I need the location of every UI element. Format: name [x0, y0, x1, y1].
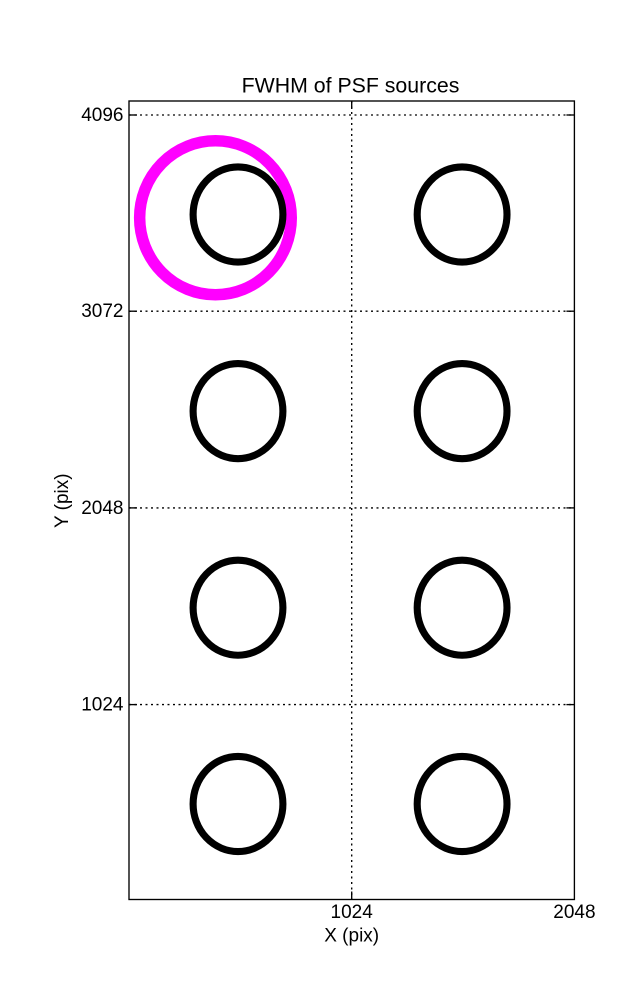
svg-text:4096: 4096 — [81, 105, 123, 126]
svg-text:3072: 3072 — [81, 301, 123, 322]
svg-text:X (pix): X (pix) — [324, 926, 379, 947]
svg-text:Y (pix): Y (pix) — [52, 473, 73, 528]
svg-text:1024: 1024 — [331, 902, 374, 923]
svg-text:1024: 1024 — [81, 695, 124, 716]
svg-text:FWHM of PSF sources: FWHM of PSF sources — [242, 74, 460, 98]
svg-text:2048: 2048 — [553, 902, 595, 923]
svg-text:2048: 2048 — [81, 498, 123, 519]
